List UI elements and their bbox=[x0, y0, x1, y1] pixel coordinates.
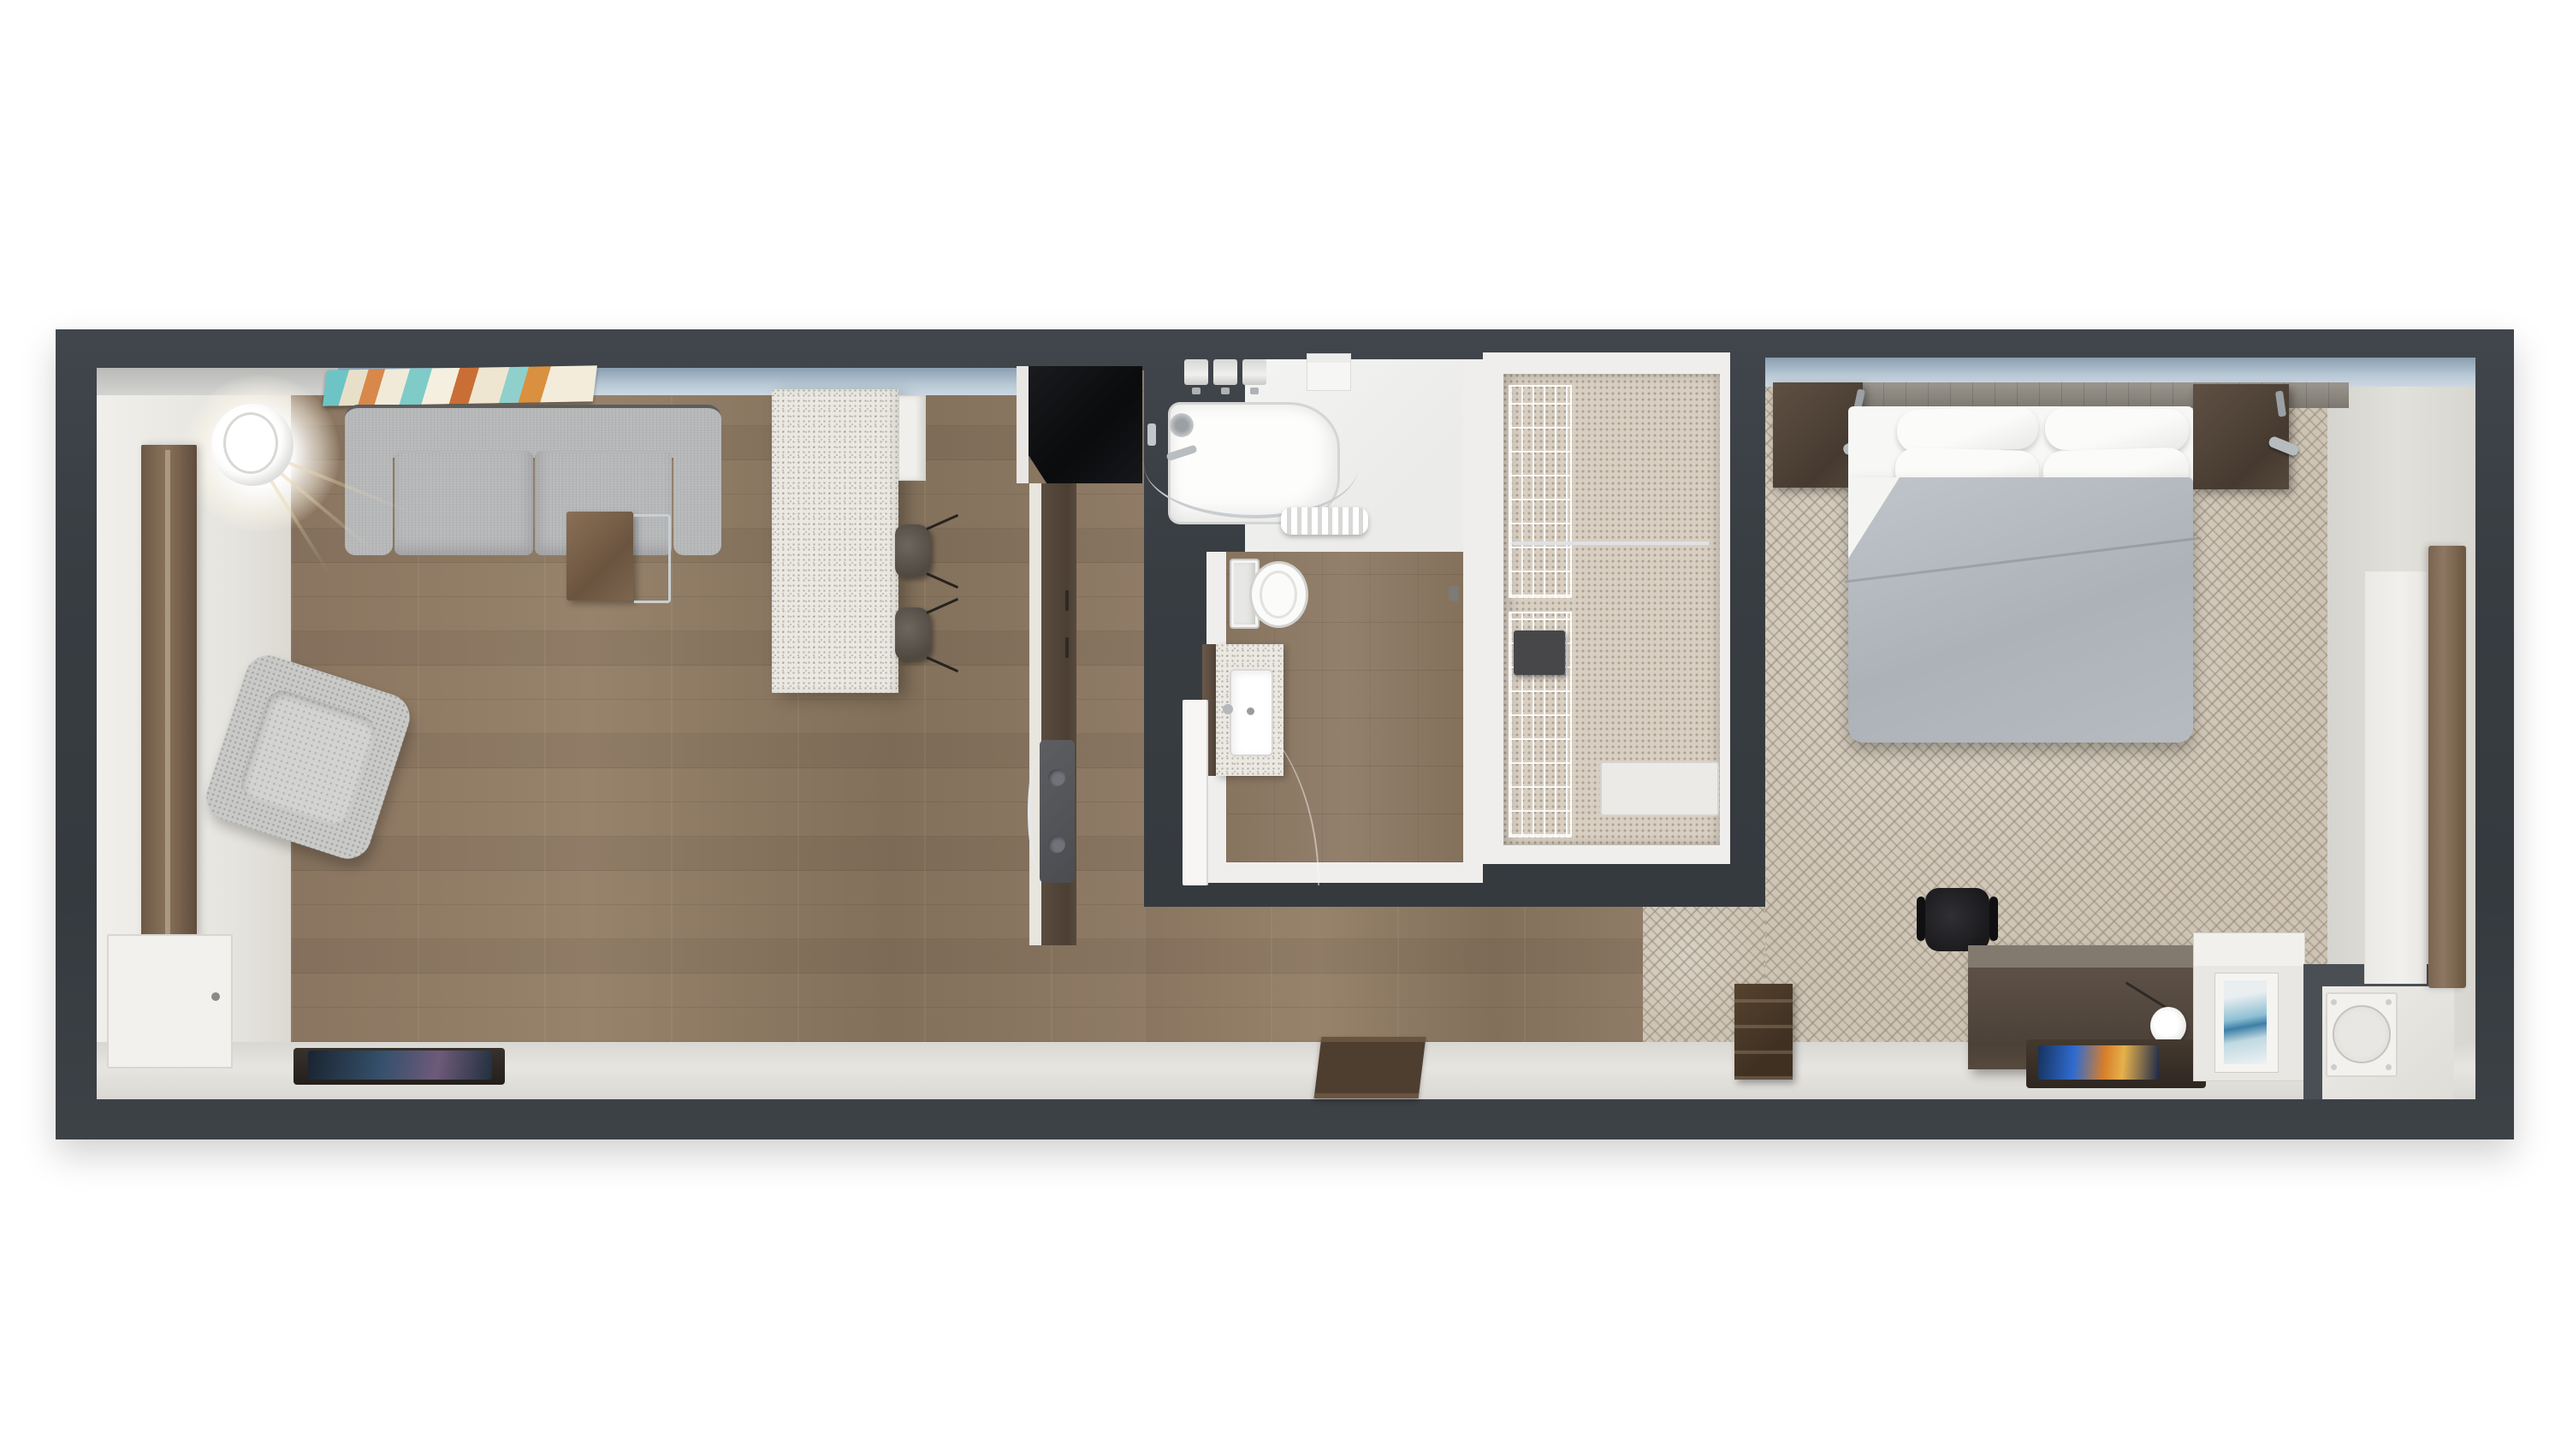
duvet-fold bbox=[1848, 477, 1900, 559]
toilet bbox=[1249, 561, 1308, 628]
room-safe bbox=[1514, 630, 1565, 675]
towel-hook bbox=[1250, 388, 1259, 394]
bathroom bbox=[1144, 329, 1483, 907]
cabinet-handle bbox=[1065, 590, 1069, 611]
pillow bbox=[2045, 407, 2190, 453]
closet bbox=[1483, 329, 1765, 907]
refrigerator-side-panel bbox=[1017, 366, 1029, 483]
sofa-arm-right bbox=[673, 410, 721, 555]
appliance-drum bbox=[2333, 1005, 2391, 1063]
folded-towel bbox=[1242, 359, 1266, 385]
full-length-mirror bbox=[141, 445, 197, 945]
bed-duvet bbox=[1848, 477, 2193, 743]
framed-art-print bbox=[2224, 980, 2267, 1064]
side-table bbox=[566, 512, 633, 601]
kitchen-island bbox=[772, 389, 898, 693]
desk-chair-arm bbox=[1917, 897, 1925, 941]
folded-towel bbox=[1184, 359, 1208, 385]
appliance-screw bbox=[2331, 1064, 2337, 1070]
bathroom-door bbox=[1183, 700, 1208, 885]
appliance-unit bbox=[2326, 992, 2398, 1077]
niche-wall bbox=[2303, 964, 2322, 1099]
luggage-bench bbox=[1734, 984, 1793, 1080]
bedroom-tv-screen bbox=[2038, 1045, 2159, 1080]
pillow bbox=[1896, 405, 2039, 453]
bar-stool bbox=[895, 524, 931, 577]
bar-stool bbox=[895, 607, 931, 660]
hallway-wood-floor bbox=[1144, 907, 1643, 1042]
bathroom-wall-band bbox=[1463, 359, 1483, 883]
kitchen-wall-cabinet bbox=[898, 395, 926, 481]
towel-ring bbox=[1449, 586, 1459, 601]
closet-bench bbox=[1600, 761, 1719, 816]
cabinet-handle bbox=[1065, 637, 1069, 658]
sofa-seat-cushion bbox=[394, 451, 533, 555]
mirror-seam bbox=[165, 450, 170, 940]
shower-head bbox=[1170, 413, 1194, 437]
wall-art bbox=[323, 365, 597, 405]
desk-chair-arm bbox=[1989, 897, 1998, 941]
towel-hook bbox=[1221, 388, 1230, 394]
floorplan bbox=[56, 329, 2514, 1139]
page: { "scene": { "type": "3d-floorplan-top-d… bbox=[0, 0, 2567, 1456]
window-sill-wood bbox=[2428, 546, 2466, 988]
pendant-lamp bbox=[211, 404, 293, 486]
shower-curtain bbox=[1281, 507, 1368, 535]
pendant-lamp-ring bbox=[223, 412, 278, 474]
window-panel bbox=[2364, 571, 2427, 984]
towel-hook bbox=[1192, 388, 1201, 394]
appliance-screw bbox=[2386, 999, 2392, 1005]
door-knob bbox=[211, 992, 220, 1001]
appliance-screw bbox=[2331, 999, 2337, 1005]
appliance-screw bbox=[2386, 1064, 2392, 1070]
connecting-door bbox=[107, 934, 233, 1068]
side-table-chrome-frame bbox=[634, 514, 671, 603]
sofa-back bbox=[345, 405, 721, 458]
wire-shelving bbox=[1509, 385, 1572, 598]
shower-pipe bbox=[1147, 423, 1156, 446]
living-tv-screen bbox=[308, 1051, 492, 1080]
framed-art bbox=[2214, 973, 2279, 1073]
refrigerator bbox=[1017, 366, 1142, 483]
refrigerator-top bbox=[1029, 366, 1142, 483]
white-cabinet bbox=[2193, 932, 2305, 1081]
folded-towel bbox=[1213, 359, 1237, 385]
kitchen-faucet-arc bbox=[1028, 753, 1053, 871]
toilet-seat bbox=[1260, 571, 1297, 619]
clothes-rod bbox=[1512, 542, 1710, 545]
corner-shelf bbox=[1307, 353, 1351, 391]
armchair-cushion bbox=[237, 686, 379, 828]
entry-door-mat bbox=[1314, 1037, 1426, 1098]
desk-chair-seat bbox=[1925, 888, 1989, 951]
